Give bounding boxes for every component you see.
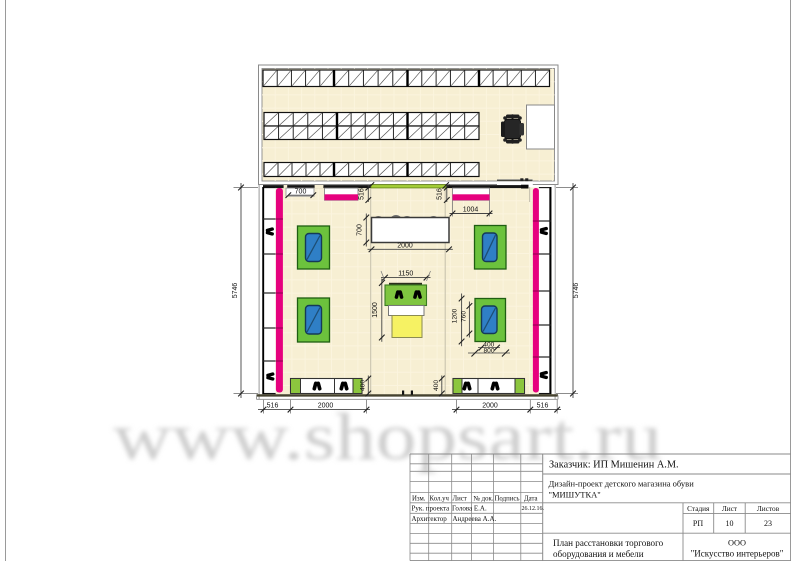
svg-text:2000: 2000 xyxy=(397,242,413,249)
svg-text:1004: 1004 xyxy=(463,206,479,213)
svg-text:Рук. проекта: Рук. проекта xyxy=(412,505,451,513)
svg-text:516: 516 xyxy=(436,188,443,200)
svg-text:Дата: Дата xyxy=(524,495,538,502)
svg-text:Голова Е.А.: Голова Е.А. xyxy=(452,505,487,513)
svg-text:1150: 1150 xyxy=(398,270,413,277)
svg-text:5746: 5746 xyxy=(232,283,239,299)
svg-text:23: 23 xyxy=(764,519,772,528)
svg-text:План расстановки торгового: План расстановки торгового xyxy=(553,538,664,548)
svg-text:Подпись: Подпись xyxy=(495,495,520,502)
svg-text:Дизайн-проект детского магазин: Дизайн-проект детского магазина обуви xyxy=(549,478,695,488)
svg-text:26.12.16.: 26.12.16. xyxy=(522,506,545,512)
svg-text:Стадия: Стадия xyxy=(687,504,710,513)
svg-text:Архитектор: Архитектор xyxy=(412,515,448,523)
svg-text:2000: 2000 xyxy=(482,402,498,409)
svg-text:Лист: Лист xyxy=(722,504,738,513)
svg-text:оборудования и мебели: оборудования и мебели xyxy=(553,549,644,559)
svg-text:Изм.: Изм. xyxy=(412,495,426,502)
svg-text:400: 400 xyxy=(360,380,367,391)
svg-text:Листов: Листов xyxy=(757,504,780,513)
svg-text:"МИШУТКА": "МИШУТКА" xyxy=(549,489,601,499)
svg-text:2000: 2000 xyxy=(318,402,334,409)
svg-text:1500: 1500 xyxy=(372,302,379,318)
svg-text:700: 700 xyxy=(295,189,307,196)
svg-text:5746: 5746 xyxy=(573,283,580,299)
svg-text:"Искусство интерьеров": "Искусство интерьеров" xyxy=(691,548,784,558)
svg-text:Андреева А.А.: Андреева А.А. xyxy=(453,515,497,523)
svg-text:760: 760 xyxy=(460,311,467,322)
svg-text:Кол.уч: Кол.уч xyxy=(430,495,450,502)
svg-text:400: 400 xyxy=(433,380,440,391)
svg-text:РП: РП xyxy=(693,519,703,528)
svg-text:516: 516 xyxy=(537,402,549,409)
svg-text:700: 700 xyxy=(357,224,364,236)
svg-text:ООО: ООО xyxy=(728,539,746,548)
svg-text:516: 516 xyxy=(359,188,366,200)
svg-text:10: 10 xyxy=(726,519,734,528)
svg-text:516: 516 xyxy=(267,402,279,409)
svg-text:Заказчик: ИП Мишенин А.М.: Заказчик: ИП Мишенин А.М. xyxy=(549,459,679,470)
svg-text:№ док.: № док. xyxy=(474,495,494,502)
svg-text:Лист: Лист xyxy=(453,495,467,502)
svg-text:1200: 1200 xyxy=(452,308,459,323)
